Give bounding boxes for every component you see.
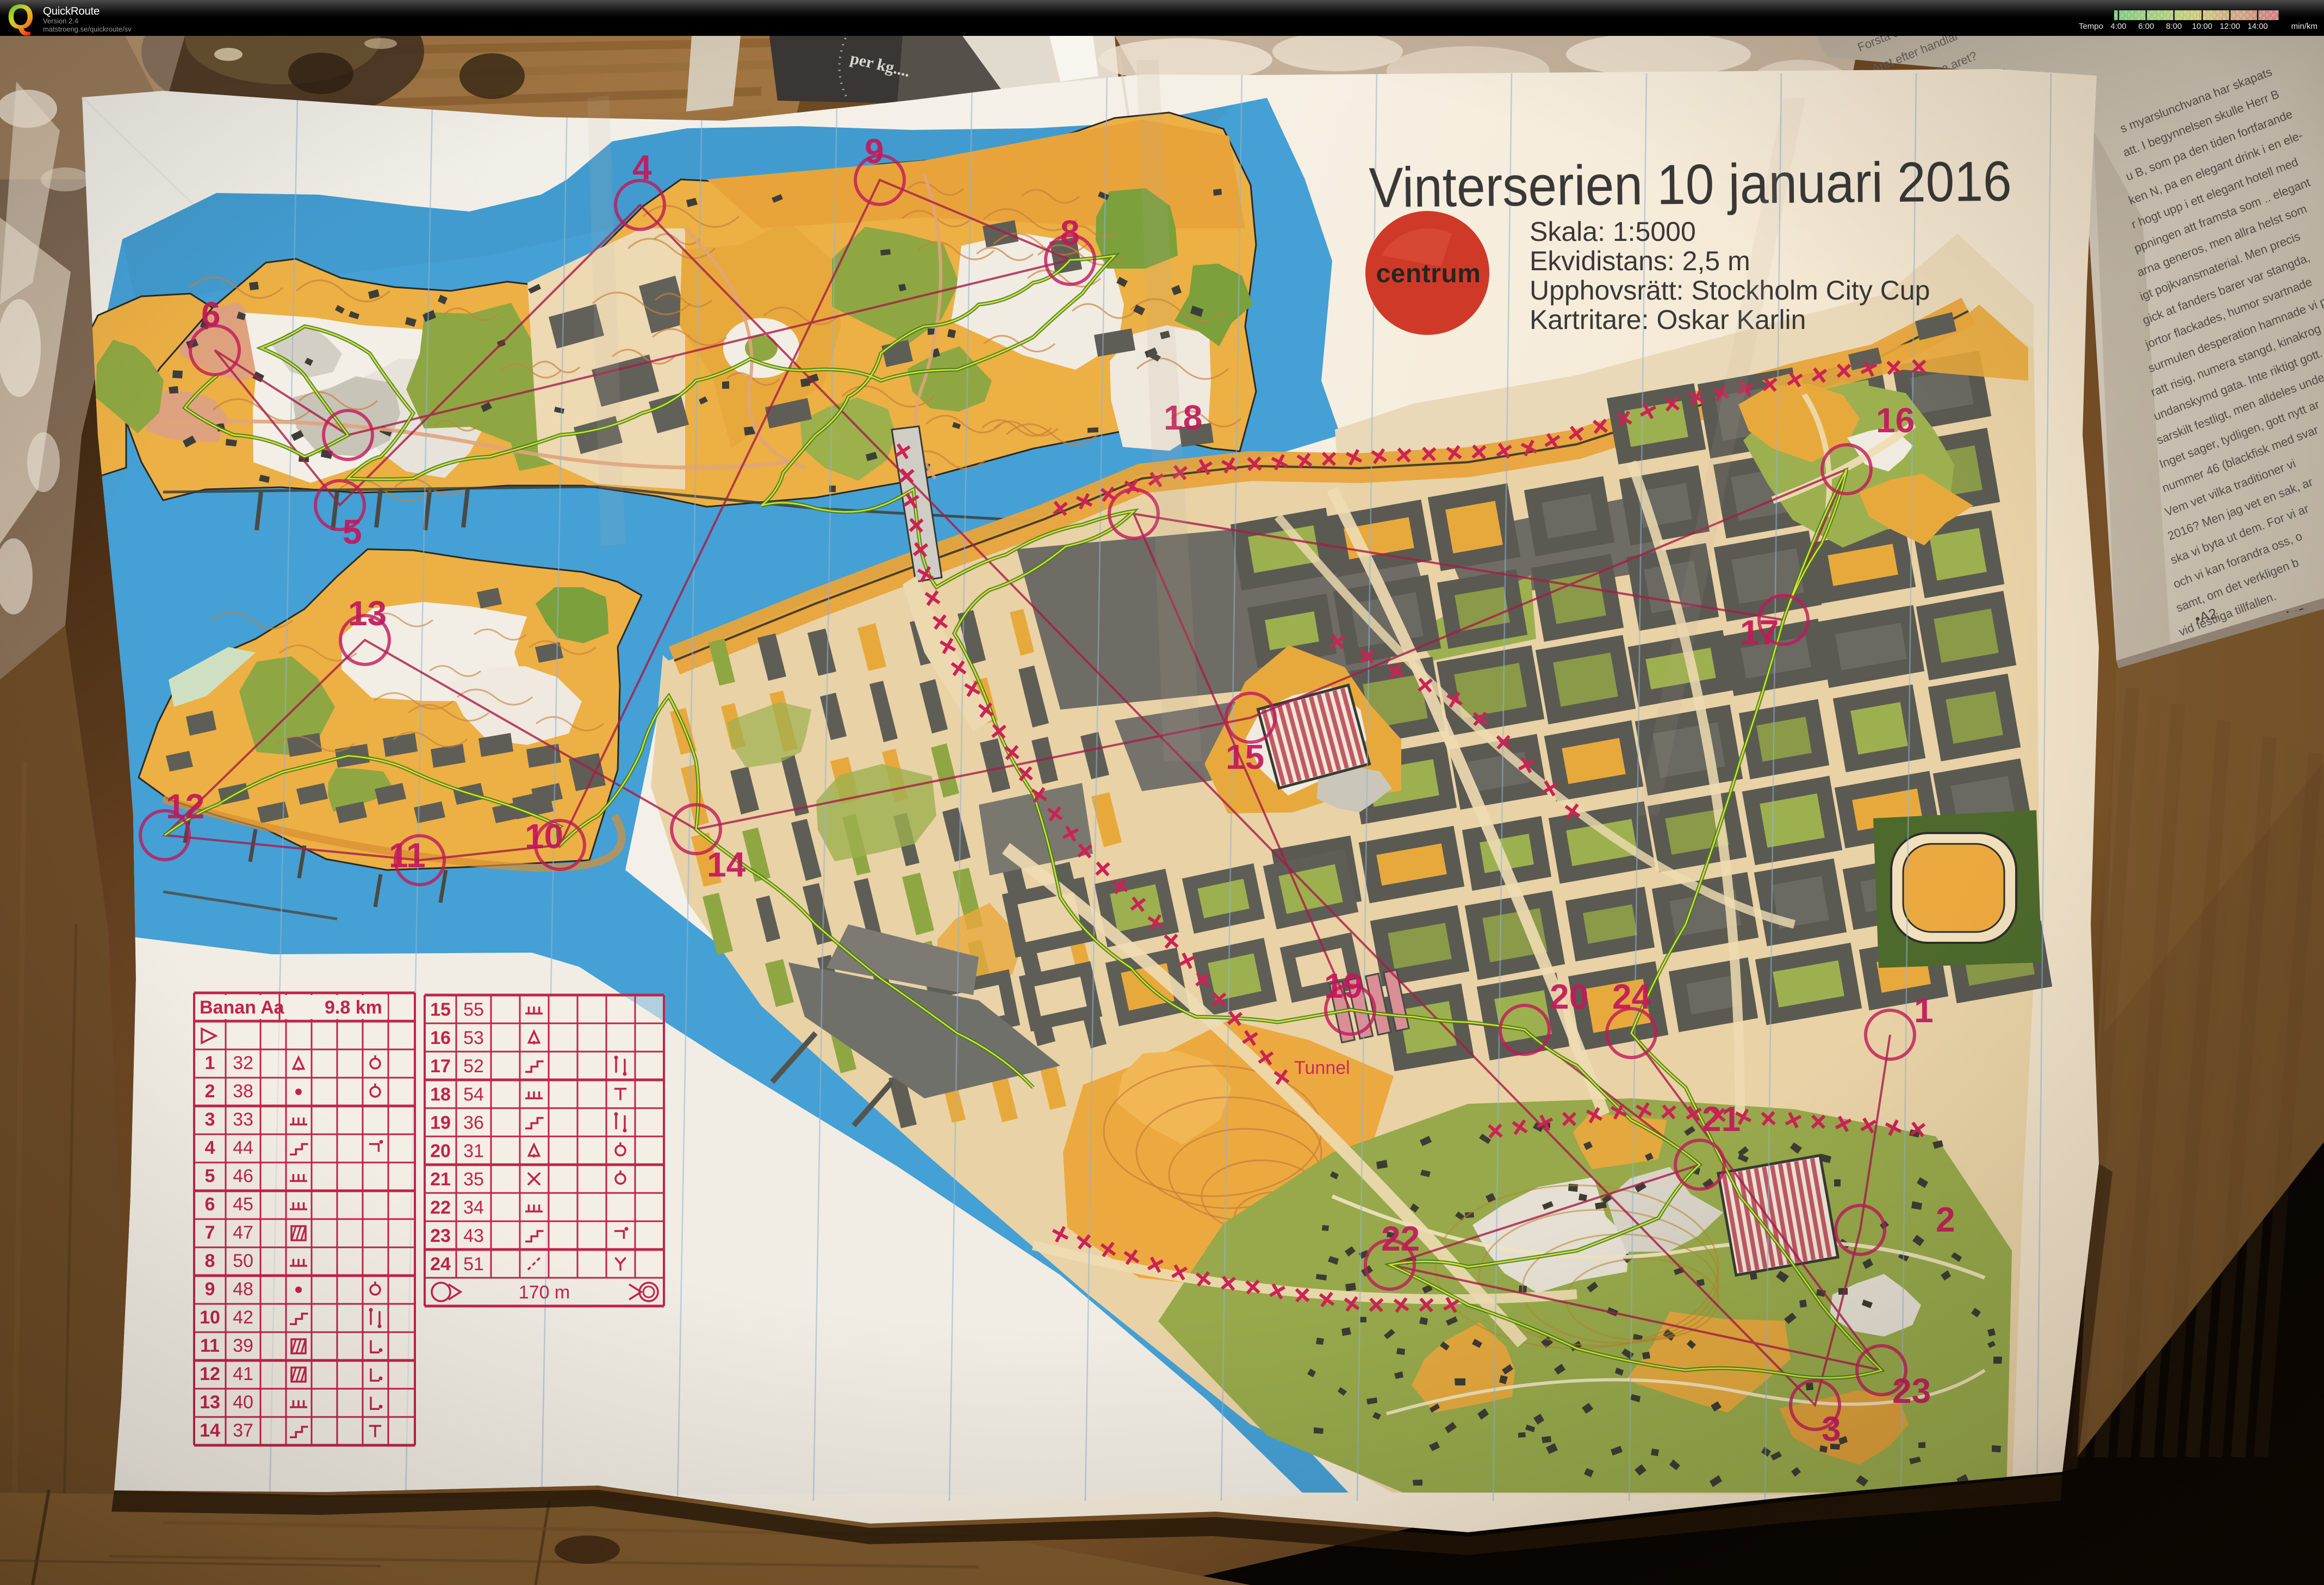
svg-text:4:00: 4:00 <box>2110 22 2126 31</box>
svg-text:Tempo: Tempo <box>2079 22 2103 31</box>
svg-text:matstroeng.se/quickroute/sv: matstroeng.se/quickroute/sv <box>43 25 132 33</box>
svg-text:12:00: 12:00 <box>2220 22 2240 31</box>
svg-text:min/km: min/km <box>2291 22 2317 31</box>
svg-text:8:00: 8:00 <box>2166 22 2182 31</box>
svg-text:10:00: 10:00 <box>2192 22 2213 31</box>
svg-text:Version 2.4: Version 2.4 <box>43 17 78 25</box>
svg-text:14:00: 14:00 <box>2247 22 2268 31</box>
svg-text:QuickRoute: QuickRoute <box>43 5 100 17</box>
svg-text:Q: Q <box>7 0 34 36</box>
svg-text:6:00: 6:00 <box>2138 22 2154 31</box>
